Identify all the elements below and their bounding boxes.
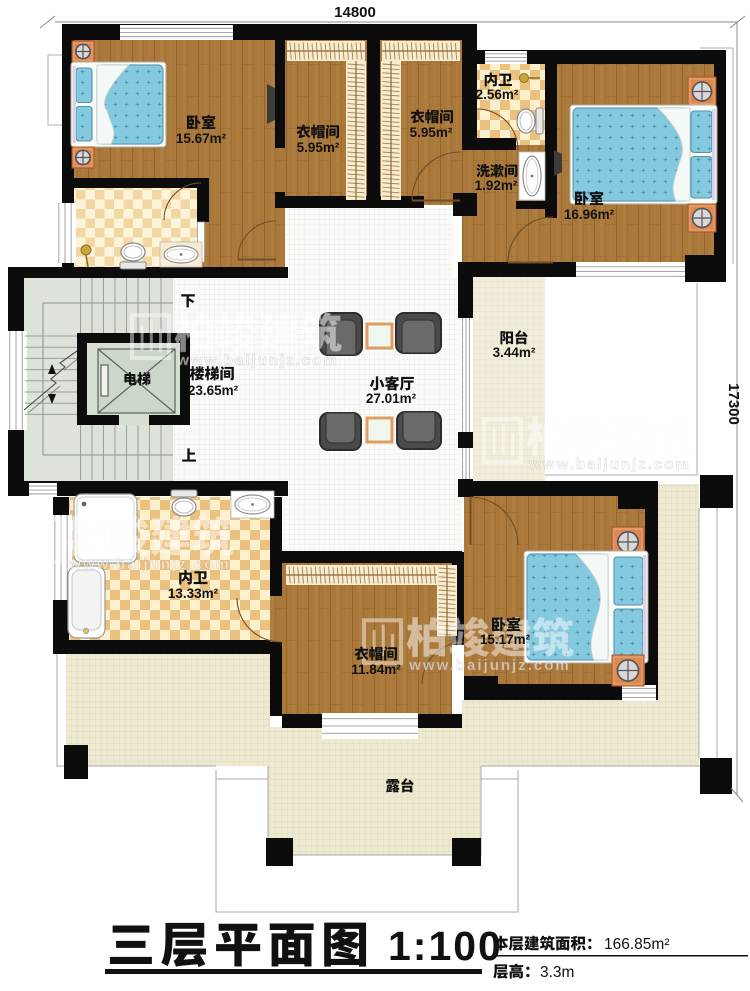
svg-text:5.95m²: 5.95m² (410, 125, 453, 140)
svg-text:3.44m²: 3.44m² (493, 345, 536, 360)
svg-text:1:100: 1:100 (388, 923, 503, 969)
svg-text:166.85m²: 166.85m² (604, 936, 669, 953)
svg-text:27.01m²: 27.01m² (366, 391, 417, 406)
svg-text:14800: 14800 (334, 4, 376, 21)
svg-text:www.baijunjz.com: www.baijunjz.com (176, 352, 338, 369)
svg-text:11.84m²: 11.84m² (351, 662, 401, 677)
svg-text:www.baijunjz.com: www.baijunjz.com (528, 456, 690, 473)
svg-text:15.67m²: 15.67m² (176, 131, 227, 146)
svg-text:5.95m²: 5.95m² (297, 140, 340, 155)
svg-text:3.3m: 3.3m (540, 964, 574, 981)
svg-text:13.33m²: 13.33m² (168, 586, 219, 601)
svg-text:17300: 17300 (725, 383, 742, 425)
svg-text:16.96m²: 16.96m² (564, 207, 615, 222)
svg-text:23.65m²: 23.65m² (188, 383, 239, 398)
svg-text:www.baijunjz.com: www.baijunjz.com (68, 556, 230, 573)
svg-text:2.56m²: 2.56m² (476, 87, 519, 102)
svg-text:1.92m²: 1.92m² (475, 178, 518, 193)
svg-text:15.17m²: 15.17m² (480, 632, 531, 647)
svg-text:www.baijunjz.com: www.baijunjz.com (408, 657, 570, 674)
